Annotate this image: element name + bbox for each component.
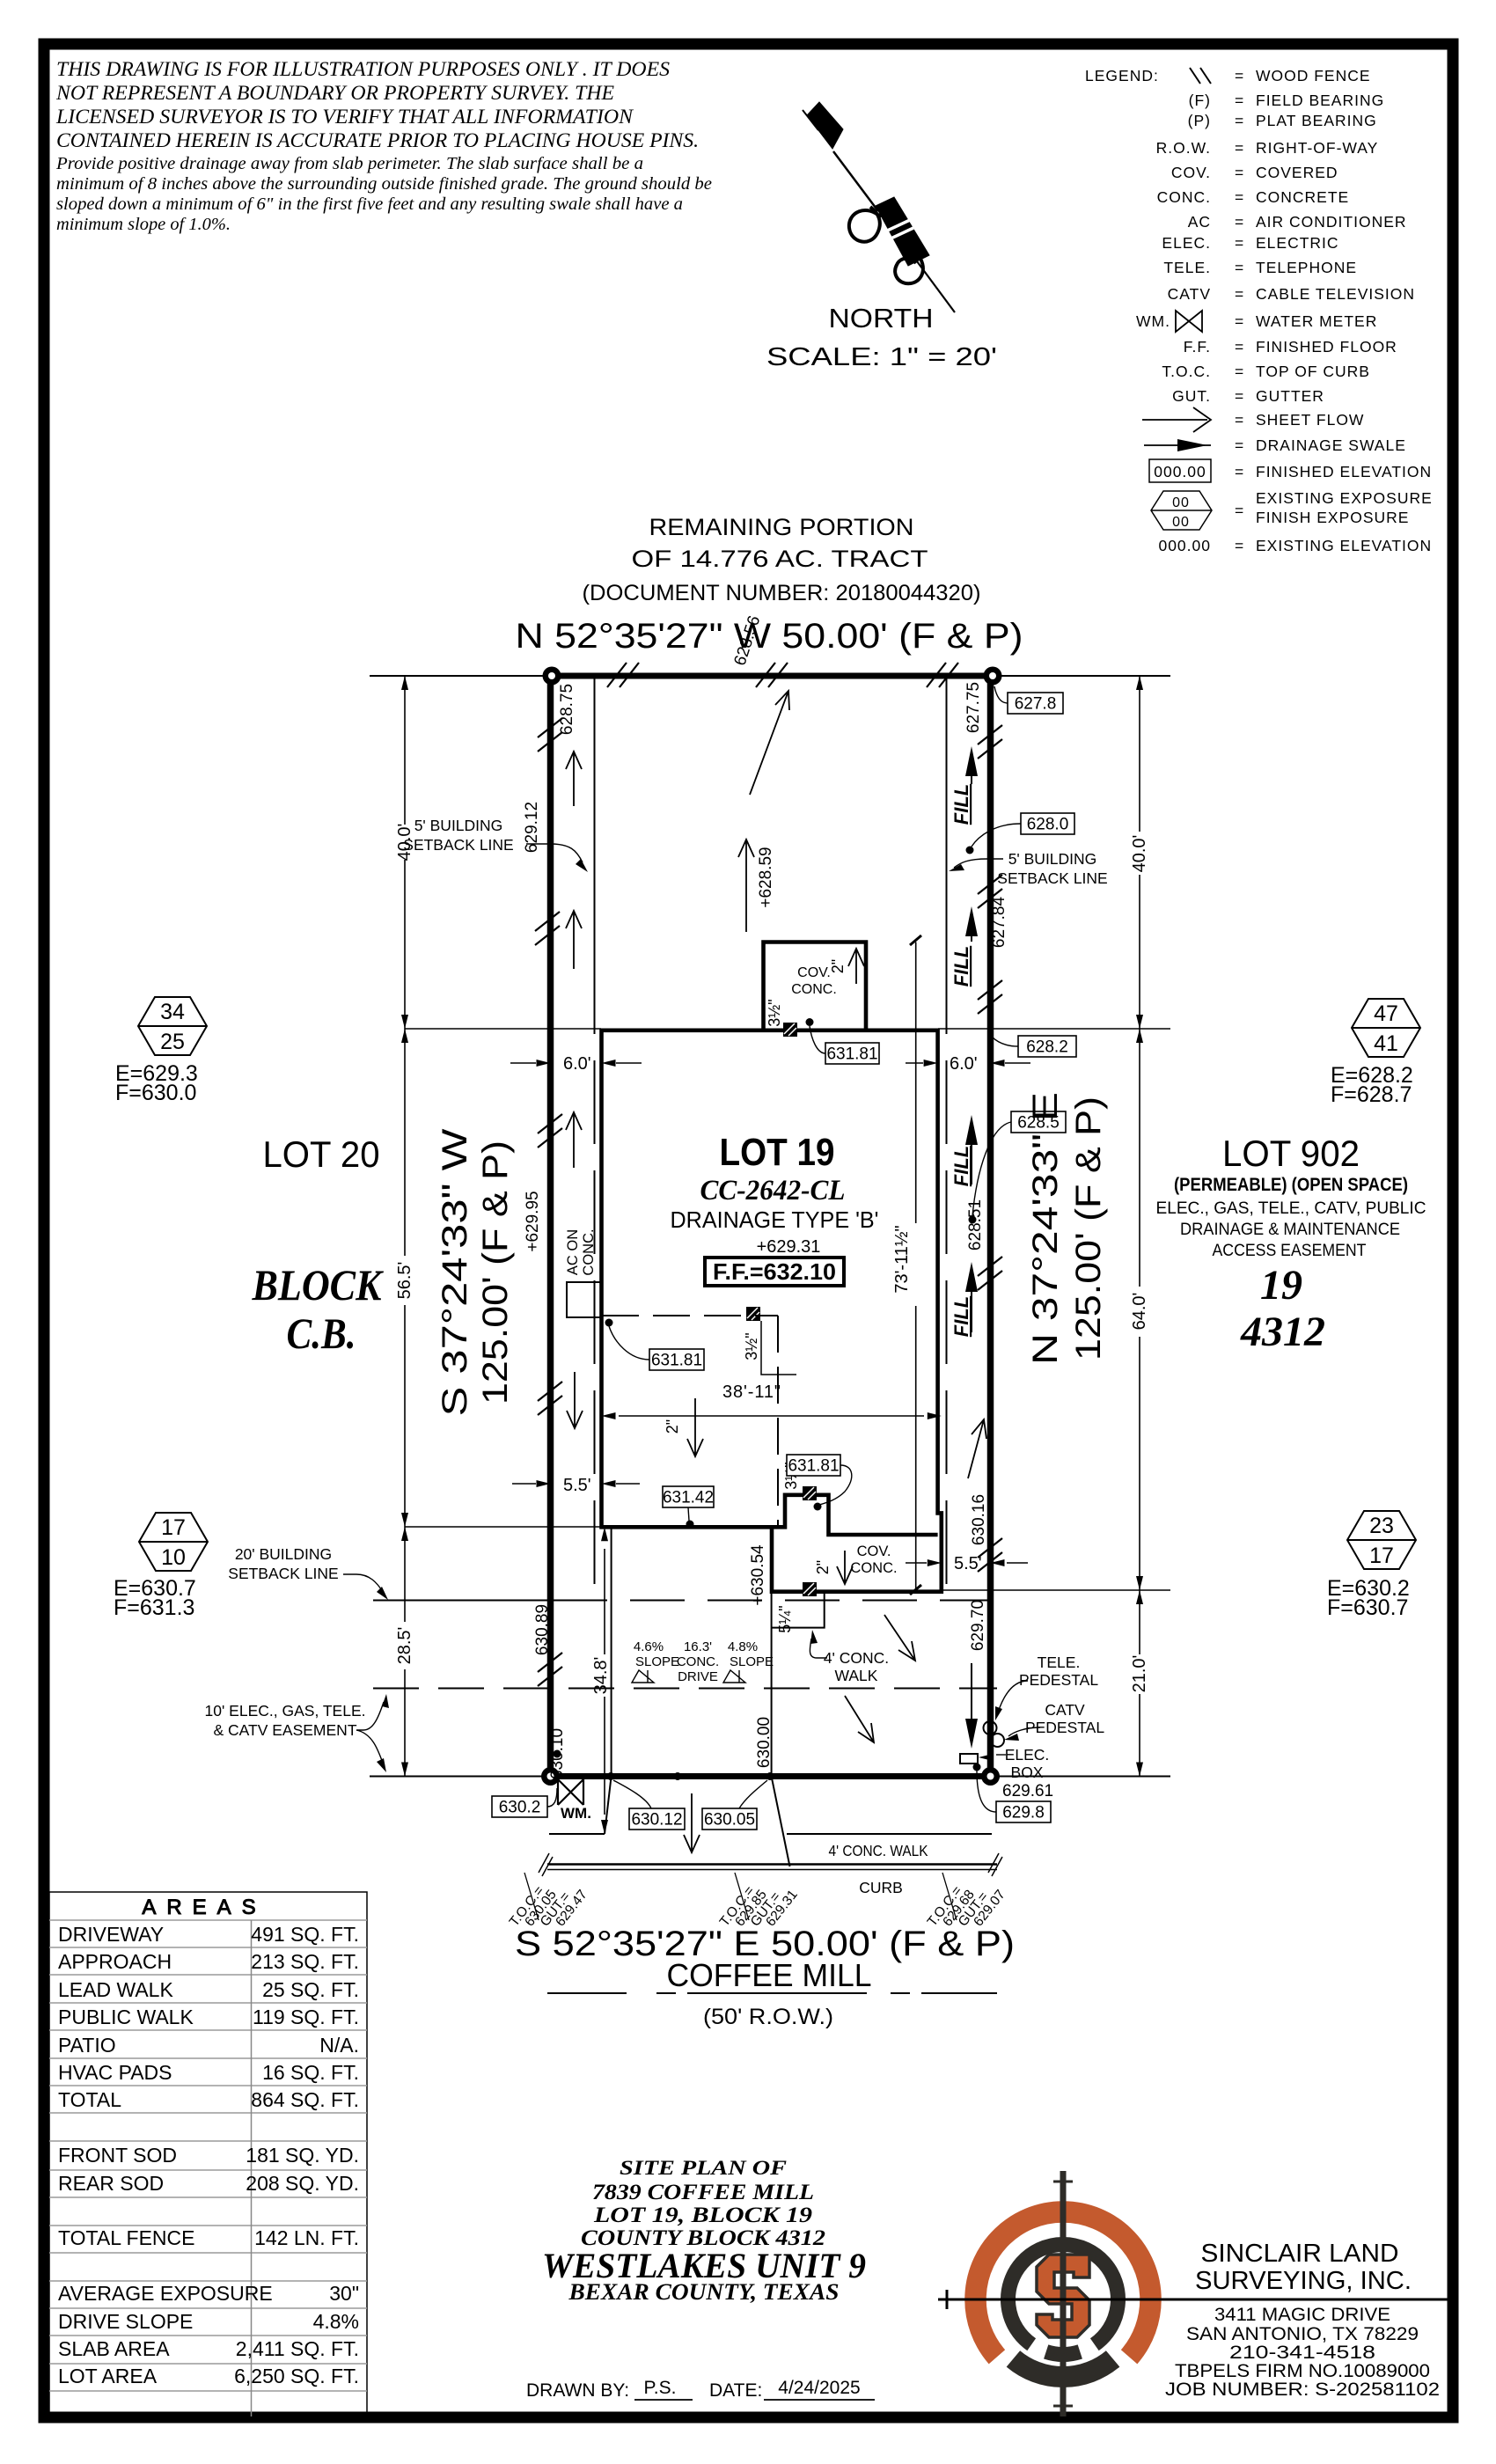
svg-text:TELE.: TELE. [1163,259,1211,276]
svg-text:=: = [1235,234,1244,252]
svg-text:LOT 19: LOT 19 [720,1131,835,1174]
svg-text:EXISTING EXPOSURE: EXISTING EXPOSURE [1256,489,1433,507]
svg-text:ELEC.: ELEC. [1162,234,1211,252]
svg-text:=: = [1235,259,1244,276]
svg-text:47: 47 [1374,1001,1398,1026]
svg-text:LEGEND:: LEGEND: [1085,67,1159,84]
svg-text:R.O.W.: R.O.W. [1156,139,1211,157]
svg-text:125.00' (F & P): 125.00' (F & P) [1069,1096,1108,1360]
svg-text:19: 19 [1260,1262,1302,1309]
svg-text:DRAINAGE TYPE 'B': DRAINAGE TYPE 'B' [671,1206,879,1233]
svg-text:WALK: WALK [835,1667,878,1684]
svg-text:000.00: 000.00 [1154,463,1206,480]
svg-text:GUTTER: GUTTER [1256,387,1324,405]
svg-text:OF 14.776 AC. TRACT: OF 14.776 AC. TRACT [632,546,928,572]
svg-text:631.81: 631.81 [651,1352,702,1370]
svg-text:N/A.: N/A. [319,2034,359,2057]
svg-text:5.5': 5.5' [954,1554,982,1573]
svg-text:630.2: 630.2 [499,1799,541,1817]
svg-text:DRIVEWAY: DRIVEWAY [58,1923,164,1946]
svg-text:2,411 SQ. FT.: 2,411 SQ. FT. [236,2337,359,2360]
svg-text:5¼": 5¼" [776,1605,794,1632]
svg-text:CURB: CURB [859,1879,903,1896]
svg-text:SETBACK LINE: SETBACK LINE [997,869,1107,887]
svg-text:ELECTRIC: ELECTRIC [1256,234,1339,252]
svg-text:(PERMEABLE) (OPEN SPACE): (PERMEABLE) (OPEN SPACE) [1174,1175,1408,1195]
svg-text:minimum slope of 1.0%.: minimum slope of 1.0%. [56,215,231,234]
svg-text:627.75: 627.75 [964,682,983,733]
svg-text:FILL: FILL [950,784,972,825]
svg-text:LICENSED SURVEYOR IS TO VERIFY: LICENSED SURVEYOR IS TO VERIFY THAT ALL … [55,106,634,128]
svg-text:+629.31: +629.31 [757,1237,821,1257]
svg-text:HVAC PADS: HVAC PADS [58,2061,172,2084]
svg-text:CONC.: CONC. [1157,188,1211,206]
svg-text:142 LN. FT.: 142 LN. FT. [254,2226,359,2249]
svg-text:125.00' (F & P): 125.00' (F & P) [476,1140,515,1404]
svg-text:COVERED: COVERED [1256,164,1338,181]
svg-text:LOT 20: LOT 20 [263,1133,380,1175]
svg-text:119 SQ. FT.: 119 SQ. FT. [253,2006,359,2028]
svg-text:CONTAINED HEREIN IS ACCURATE P: CONTAINED HEREIN IS ACCURATE PRIOR TO PL… [56,129,699,152]
svg-text:629.8: 629.8 [1002,1804,1045,1822]
svg-text:SLAB AREA: SLAB AREA [58,2337,170,2360]
svg-text:TOP OF CURB: TOP OF CURB [1256,363,1370,380]
svg-text:CONC.: CONC. [791,982,837,997]
svg-text:208 SQ. YD.: 208 SQ. YD. [246,2172,359,2195]
svg-text:=: = [1235,67,1244,84]
svg-text:N 52°35'27" W 50.00' (F & P): N 52°35'27" W 50.00' (F & P) [516,617,1023,656]
svg-text:JOB NUMBER: S-202581102: JOB NUMBER: S-202581102 [1165,2380,1440,2400]
svg-text:491 SQ. FT.: 491 SQ. FT. [251,1923,359,1946]
svg-text:N 37°24'33" E: N 37°24'33" E [1026,1092,1065,1365]
svg-text:17: 17 [161,1515,186,1540]
svg-text:AIR CONDITIONER: AIR CONDITIONER [1256,213,1407,231]
svg-text:38'-11": 38'-11" [722,1382,781,1402]
svg-text:631.81: 631.81 [826,1045,877,1064]
svg-text:EXISTING ELEVATION: EXISTING ELEVATION [1256,537,1432,554]
svg-text:7839 COFFEE MILL: 7839 COFFEE MILL [592,2181,814,2204]
svg-text:17: 17 [1369,1544,1394,1568]
svg-text:PUBLIC WALK: PUBLIC WALK [58,2006,194,2028]
svg-text:REMAINING PORTION: REMAINING PORTION [649,514,914,540]
svg-text:COV.: COV. [1171,164,1211,181]
svg-text:F.F.=632.10: F.F.=632.10 [713,1258,836,1285]
svg-text:minimum of 8 inches above the: minimum of 8 inches above the surroundin… [56,174,712,194]
svg-text:BEXAR COUNTY, TEXAS: BEXAR COUNTY, TEXAS [568,2279,839,2305]
svg-text:41: 41 [1374,1031,1398,1056]
svg-text:+630.54: +630.54 [749,1544,767,1606]
svg-text:PLAT BEARING: PLAT BEARING [1256,112,1377,129]
svg-text:=: = [1235,537,1244,554]
svg-text:=: = [1235,285,1244,303]
svg-text:5.5': 5.5' [563,1476,591,1495]
svg-text:16 SQ. FT.: 16 SQ. FT. [262,2061,359,2084]
svg-text:629.12: 629.12 [523,802,541,853]
svg-text:628.0: 628.0 [1027,816,1069,834]
svg-text:23: 23 [1369,1514,1394,1538]
svg-text:TOTAL FENCE: TOTAL FENCE [58,2226,195,2249]
svg-text:SINCLAIR LAND: SINCLAIR LAND [1201,2240,1399,2268]
svg-text:DRAWN BY:: DRAWN BY: [526,2380,629,2401]
svg-text:25 SQ. FT.: 25 SQ. FT. [262,1978,359,2001]
svg-text:COV.: COV. [857,1544,891,1559]
svg-text:=: = [1235,312,1244,330]
svg-text:629.61: 629.61 [1002,1782,1053,1800]
svg-text:RIGHT-OF-WAY: RIGHT-OF-WAY [1256,139,1378,157]
svg-text:=: = [1235,213,1244,231]
svg-text:64.0': 64.0' [1130,1293,1149,1331]
svg-text:CONCRETE: CONCRETE [1256,188,1349,206]
svg-text:628.51: 628.51 [966,1199,985,1250]
svg-text:5' BUILDING: 5' BUILDING [414,817,503,834]
svg-text:CONC.: CONC. [850,1560,897,1576]
svg-text:631.42: 631.42 [663,1489,714,1507]
svg-text:631.81: 631.81 [788,1457,839,1476]
svg-text:WOOD FENCE: WOOD FENCE [1256,67,1371,84]
svg-text:(DOCUMENT NUMBER: 20180044320): (DOCUMENT NUMBER: 20180044320) [583,581,981,605]
svg-text:SETBACK LINE: SETBACK LINE [228,1565,338,1582]
svg-text:BOX: BOX [1011,1764,1044,1781]
svg-text:SETBACK LINE: SETBACK LINE [403,836,513,854]
svg-text:4.8%: 4.8% [313,2310,359,2333]
svg-text:TELE.: TELE. [1038,1654,1081,1671]
svg-text:DRAINAGE SWALE: DRAINAGE SWALE [1256,436,1406,454]
svg-text:000.00: 000.00 [1158,537,1211,554]
svg-text:213 SQ. FT.: 213 SQ. FT. [251,1950,359,1973]
svg-text:=: = [1235,188,1244,206]
svg-text:SITE PLAN OF: SITE PLAN OF [620,2157,787,2179]
svg-text:NORTH: NORTH [829,303,934,334]
svg-text:WATER METER: WATER METER [1256,312,1377,330]
svg-text:(50' R.O.W.): (50' R.O.W.) [703,2005,833,2029]
svg-text:2": 2" [814,1560,832,1574]
svg-text:WM.: WM. [1136,312,1170,330]
svg-text:LOT 902: LOT 902 [1222,1133,1360,1174]
svg-text:3411 MAGIC DRIVE: 3411 MAGIC DRIVE [1214,2305,1390,2325]
svg-text:630.00: 630.00 [755,1717,774,1768]
svg-text:6.0': 6.0' [563,1054,591,1074]
svg-text:34.8': 34.8' [591,1657,611,1695]
svg-text:40.0': 40.0' [1130,835,1149,873]
svg-text:4.8%: 4.8% [728,1639,758,1654]
svg-text:=: = [1235,112,1244,129]
svg-text:630.16: 630.16 [970,1494,988,1545]
svg-text:Provide positive drainage away: Provide positive drainage away from slab… [55,154,643,173]
svg-text:=: = [1235,411,1244,429]
svg-text:=: = [1235,139,1244,157]
svg-text:6,250 SQ. FT.: 6,250 SQ. FT. [234,2365,359,2387]
svg-text:WM.: WM. [561,1805,591,1822]
svg-text:56.5': 56.5' [395,1262,414,1300]
svg-text:LEAD WALK: LEAD WALK [58,1978,173,2001]
svg-text:PEDESTAL: PEDESTAL [1019,1671,1098,1689]
svg-text:F=630.7: F=630.7 [1327,1595,1408,1620]
svg-text:FIELD BEARING: FIELD BEARING [1256,92,1384,109]
svg-text:TOTAL: TOTAL [58,2088,121,2111]
svg-text:CABLE TELEVISION: CABLE TELEVISION [1256,285,1415,303]
svg-text:(F): (F) [1189,92,1211,109]
svg-text:DRIVE SLOPE: DRIVE SLOPE [58,2310,193,2333]
svg-text:864 SQ. FT.: 864 SQ. FT. [251,2088,359,2111]
svg-text:DRAINAGE & MAINTENANCE: DRAINAGE & MAINTENANCE [1180,1220,1400,1239]
svg-text:FINISHED ELEVATION: FINISHED ELEVATION [1256,463,1432,480]
svg-text:T.O.C.: T.O.C. [1162,363,1211,380]
svg-text:C.B.: C.B. [287,1309,356,1358]
svg-text:10: 10 [161,1545,186,1570]
svg-text:628.75: 628.75 [558,684,576,735]
svg-text:APPROACH: APPROACH [58,1950,172,1973]
svg-text:25: 25 [160,1030,185,1054]
svg-text:REAR SOD: REAR SOD [58,2172,164,2195]
svg-text:LOT AREA: LOT AREA [58,2365,158,2387]
svg-text:FRONT SOD: FRONT SOD [58,2144,177,2167]
svg-text:10' ELEC., GAS, TELE.: 10' ELEC., GAS, TELE. [205,1702,366,1720]
svg-text:DRIVE: DRIVE [678,1669,718,1684]
svg-text:AC: AC [1188,213,1211,231]
svg-text:628.2: 628.2 [1026,1038,1068,1057]
svg-text:181 SQ. YD.: 181 SQ. YD. [246,2144,359,2167]
svg-text:COV.: COV. [797,965,831,980]
svg-text:FINISH EXPOSURE: FINISH EXPOSURE [1256,509,1409,526]
svg-text:2": 2" [664,1419,681,1434]
svg-text:SHEET FLOW: SHEET FLOW [1256,411,1364,429]
svg-text:28.5': 28.5' [395,1627,414,1665]
svg-text:CC-2642-CL: CC-2642-CL [700,1175,846,1206]
svg-text:P.S.: P.S. [644,2378,677,2398]
svg-text:+629.95: +629.95 [524,1191,542,1251]
svg-text:LOT 19, BLOCK 19: LOT 19, BLOCK 19 [593,2204,813,2227]
svg-text:=: = [1235,164,1244,181]
svg-text:SCALE: 1" = 20': SCALE: 1" = 20' [766,343,997,371]
svg-text:627.84: 627.84 [990,897,1008,949]
svg-text:6.0': 6.0' [950,1054,978,1074]
svg-text:30": 30" [329,2282,359,2305]
svg-text:20' BUILDING: 20' BUILDING [235,1545,332,1563]
svg-text:AVERAGE EXPOSURE: AVERAGE EXPOSURE [58,2282,273,2305]
svg-text:FILL: FILL [950,1296,972,1337]
svg-text:=: = [1235,92,1244,109]
svg-text:NOT REPRESENT A BOUNDARY OR PR: NOT REPRESENT A BOUNDARY OR PROPERTY SUR… [55,82,614,105]
svg-text:FILL: FILL [950,1146,972,1186]
svg-text:CONC.: CONC. [581,1228,597,1275]
svg-text:CATV: CATV [1168,285,1211,303]
svg-text:5' BUILDING: 5' BUILDING [1008,850,1097,868]
svg-text:3½": 3½" [743,1332,760,1360]
svg-text:TBPELS FIRM NO.10089000: TBPELS FIRM NO.10089000 [1175,2361,1430,2381]
svg-text:630.05: 630.05 [704,1811,755,1830]
svg-text:=: = [1235,363,1244,380]
svg-text:SLOPE: SLOPE [730,1654,774,1669]
svg-text:(P): (P) [1188,112,1211,129]
svg-text:630.89: 630.89 [533,1604,552,1655]
svg-text:ACCESS EASEMENT: ACCESS EASEMENT [1213,1241,1367,1260]
svg-text:=: = [1235,436,1244,454]
svg-text:4' CONC. WALK: 4' CONC. WALK [829,1842,928,1859]
svg-text:21.0': 21.0' [1130,1655,1149,1693]
svg-text:BLOCK: BLOCK [252,1260,385,1309]
svg-text:4' CONC.: 4' CONC. [824,1649,889,1667]
svg-text:COFFEE MILL: COFFEE MILL [667,1957,872,1993]
svg-text:3½": 3½" [766,999,783,1026]
svg-text:F=630.0: F=630.0 [115,1081,196,1105]
svg-text:4/24/2025: 4/24/2025 [778,2378,860,2398]
svg-text:+628.59: +628.59 [757,847,775,907]
svg-text:SURVEYING, INC.: SURVEYING, INC. [1195,2267,1412,2295]
svg-text:2": 2" [829,959,847,973]
svg-text:73'-11½": 73'-11½" [892,1225,912,1293]
svg-text:=: = [1235,463,1244,480]
svg-text:S 37°24'33" W: S 37°24'33" W [436,1128,474,1416]
svg-text:SLOPE: SLOPE [635,1654,679,1669]
svg-text:TELEPHONE: TELEPHONE [1256,259,1357,276]
svg-text:=: = [1235,502,1244,519]
svg-text:CATV: CATV [1045,1701,1085,1719]
svg-text:GUT.: GUT. [1172,387,1211,405]
svg-text:34: 34 [160,1000,185,1024]
svg-text:F=631.3: F=631.3 [114,1595,194,1620]
svg-text:sloped down a minimum of 6" in: sloped down a minimum of 6" in the first… [56,194,683,214]
svg-text:AC ON: AC ON [565,1229,581,1275]
svg-text:F=628.7: F=628.7 [1331,1082,1412,1107]
svg-text:PATIO: PATIO [58,2034,116,2057]
svg-text:FILL: FILL [950,946,972,986]
svg-text:630.12: 630.12 [631,1811,682,1830]
svg-text:ELEC.: ELEC. [1005,1746,1050,1764]
svg-text:=: = [1235,338,1244,356]
svg-text:F.F.: F.F. [1184,338,1211,356]
svg-text:FINISHED FLOOR: FINISHED FLOOR [1256,338,1397,356]
svg-text:=: = [1235,387,1244,405]
svg-text:00: 00 [1172,495,1190,510]
svg-text:629.70: 629.70 [969,1600,987,1651]
svg-text:& CATV EASEMENT: & CATV EASEMENT [213,1721,356,1739]
svg-text:627.8: 627.8 [1015,695,1057,714]
svg-text:SAN ANTONIO, TX 78229: SAN ANTONIO, TX 78229 [1186,2324,1419,2344]
svg-text:AREAS: AREAS [142,1896,266,1919]
svg-text:THIS DRAWING IS FOR ILLUSTRATI: THIS DRAWING IS FOR ILLUSTRATION PURPOSE… [56,58,670,81]
svg-text:ELEC., GAS, TELE., CATV, PUBLI: ELEC., GAS, TELE., CATV, PUBLIC [1156,1199,1426,1218]
svg-text:210-341-4518: 210-341-4518 [1229,2343,1375,2363]
svg-text:4.6%: 4.6% [634,1639,664,1654]
svg-text:00: 00 [1172,515,1190,530]
svg-text:CONC.: CONC. [677,1654,719,1669]
svg-text:DATE:: DATE: [709,2380,762,2401]
svg-text:16.3': 16.3' [684,1639,712,1654]
svg-text:4312: 4312 [1240,1309,1325,1355]
